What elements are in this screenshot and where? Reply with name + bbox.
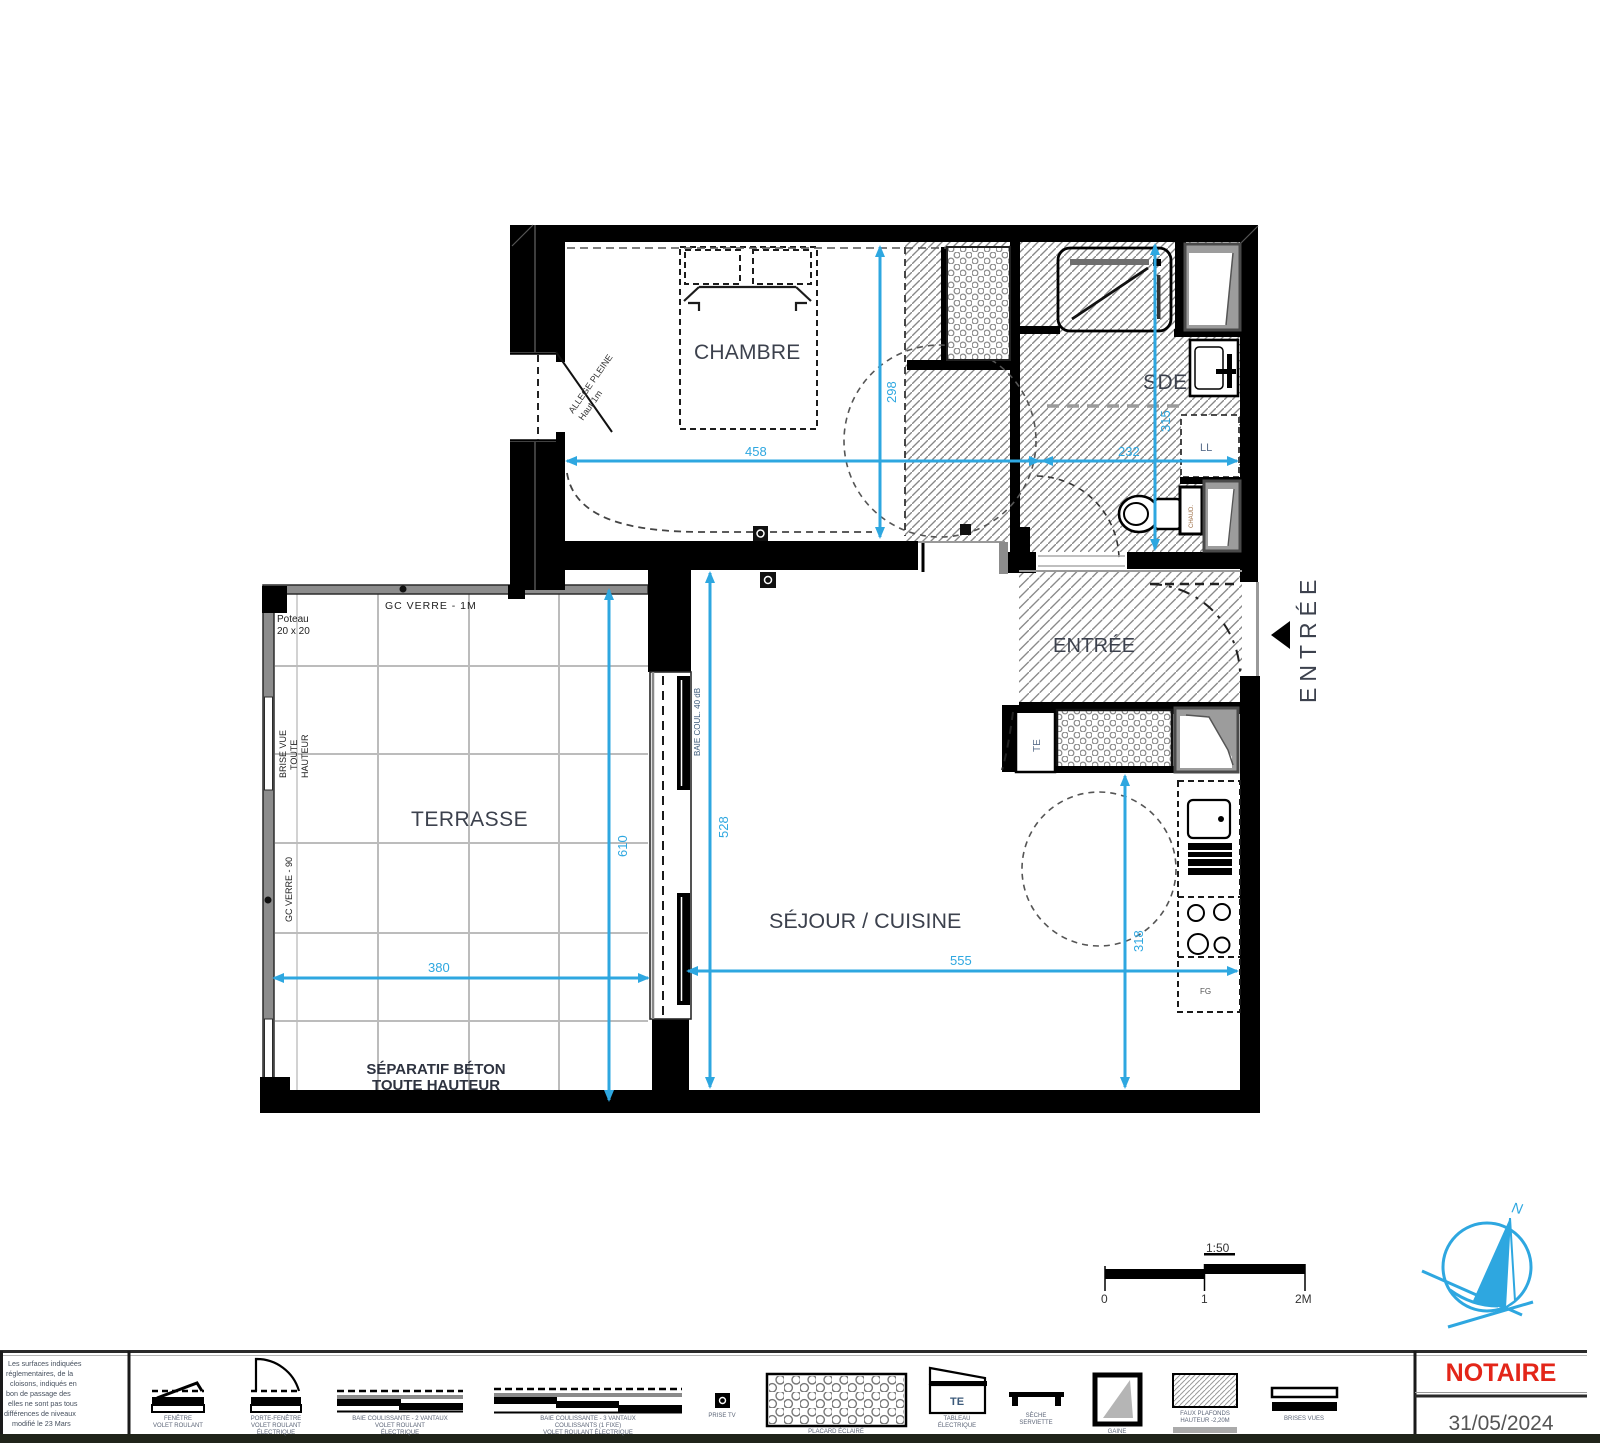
svg-text:ÉLECTRIQUE: ÉLECTRIQUE [257, 1429, 295, 1436]
svg-text:Poteau: Poteau [277, 614, 309, 625]
svg-text:différences de niveaux: différences de niveaux [4, 1409, 76, 1418]
svg-text:BAIE COULISSANTE - 3 VANTAUX: BAIE COULISSANTE - 3 VANTAUX [540, 1416, 635, 1422]
svg-text:BAIE COULISSANTE - 2 VANTAUX: BAIE COULISSANTE - 2 VANTAUX [352, 1416, 447, 1422]
svg-text:1: 1 [1201, 1292, 1208, 1306]
svg-text:SDE: SDE [1143, 371, 1188, 394]
svg-text:528: 528 [716, 816, 731, 838]
svg-text:Les surfaces indiquées: Les surfaces indiquées [8, 1359, 82, 1368]
svg-text:318: 318 [1131, 930, 1146, 952]
svg-text:PLACARD ÉCLAIRÉ: PLACARD ÉCLAIRÉ [808, 1428, 864, 1435]
svg-text:TE: TE [950, 1396, 964, 1408]
svg-text:GC VERRE - 1M: GC VERRE - 1M [385, 600, 477, 612]
svg-text:réglementaires, de la: réglementaires, de la [6, 1369, 73, 1378]
svg-text:SÉPARATIF BÉTON: SÉPARATIF BÉTON [366, 1061, 505, 1078]
svg-text:ÉLECTRIQUE: ÉLECTRIQUE [381, 1429, 419, 1436]
svg-text:610: 610 [615, 835, 630, 857]
svg-text:TOUTE HAUTEUR: TOUTE HAUTEUR [372, 1077, 500, 1094]
svg-text:TABLEAU: TABLEAU [944, 1416, 971, 1422]
svg-text:SERVIETTE: SERVIETTE [1019, 1420, 1052, 1426]
svg-text:NOTAIRE: NOTAIRE [1446, 1359, 1557, 1387]
svg-text:1:50: 1:50 [1206, 1241, 1230, 1255]
svg-text:FENÊTRE: FENÊTRE [164, 1414, 192, 1422]
svg-text:HAUTEUR -2,20M: HAUTEUR -2,20M [1180, 1418, 1229, 1424]
svg-text:31/05/2024: 31/05/2024 [1448, 1412, 1553, 1435]
svg-text:modifié le 23 Mars: modifié le 23 Mars [12, 1419, 71, 1428]
svg-text:2M: 2M [1295, 1292, 1312, 1306]
svg-text:232: 232 [1118, 444, 1140, 459]
svg-text:COULISSANTS (1 FIXE): COULISSANTS (1 FIXE) [555, 1423, 621, 1429]
svg-text:FAUX PLAFONDS: FAUX PLAFONDS [1180, 1411, 1230, 1417]
svg-text:TOUTE: TOUTE [289, 740, 299, 770]
svg-text:VOLET ROULANT ÉLECTRIQUE: VOLET ROULANT ÉLECTRIQUE [543, 1429, 633, 1436]
svg-text:VOLET ROULANT: VOLET ROULANT [375, 1423, 425, 1429]
svg-text:TERRASSE: TERRASSE [411, 808, 528, 831]
svg-text:CHAMBRE: CHAMBRE [694, 341, 800, 364]
svg-text:SÉJOUR / CUISINE: SÉJOUR / CUISINE [769, 908, 961, 933]
svg-text:HAUTEUR: HAUTEUR [300, 734, 310, 778]
svg-text:elles ne sont pas tous: elles ne sont pas tous [8, 1399, 78, 1408]
svg-text:BRISE VUE: BRISE VUE [278, 730, 288, 778]
svg-text:VOLET ROULANT: VOLET ROULANT [153, 1423, 203, 1429]
svg-text:BAIE COUL. 40 dB: BAIE COUL. 40 dB [693, 688, 702, 756]
svg-text:PORTE-FENÊTRE: PORTE-FENÊTRE [251, 1414, 302, 1422]
svg-text:CHAUD.: CHAUD. [1189, 505, 1195, 528]
svg-text:TE: TE [1032, 739, 1043, 752]
svg-text:cloisons, indiqués en: cloisons, indiqués en [10, 1379, 77, 1388]
svg-text:380: 380 [428, 960, 450, 975]
svg-text:GC VERRE - 90: GC VERRE - 90 [284, 857, 294, 922]
svg-text:ÉLECTRIQUE: ÉLECTRIQUE [938, 1422, 976, 1429]
svg-text:ENTRÉE: ENTRÉE [1053, 634, 1135, 657]
svg-text:GAINE: GAINE [1108, 1429, 1127, 1435]
svg-text:ENTRÉE: ENTRÉE [1295, 574, 1321, 703]
svg-text:20 x 20: 20 x 20 [277, 626, 310, 637]
svg-text:298: 298 [884, 381, 899, 403]
svg-text:bon de passage des: bon de passage des [6, 1389, 71, 1398]
svg-text:VOLET ROULANT: VOLET ROULANT [251, 1423, 301, 1429]
svg-text:0: 0 [1101, 1292, 1108, 1306]
svg-text:FG: FG [1200, 987, 1211, 996]
svg-text:555: 555 [950, 953, 972, 968]
svg-text:LL: LL [1200, 442, 1212, 454]
svg-text:458: 458 [745, 444, 767, 459]
svg-text:BRISES VUES: BRISES VUES [1284, 1416, 1324, 1422]
svg-text:PRISE TV: PRISE TV [708, 1413, 735, 1419]
svg-text:315: 315 [1158, 410, 1173, 432]
svg-text:SÈCHE: SÈCHE [1026, 1412, 1047, 1419]
